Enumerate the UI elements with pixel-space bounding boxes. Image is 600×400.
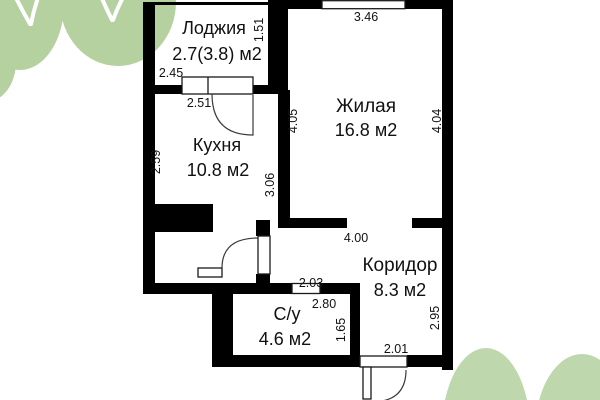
dim-loggia-depth: 1.51 <box>252 18 266 42</box>
dim-kitchen-right: 3.06 <box>263 173 277 197</box>
living-area: 16.8 м2 <box>335 120 397 140</box>
entrance-threshold <box>360 356 407 367</box>
leaf-decoration-bottom-right <box>442 348 600 400</box>
kitchen-name: Кухня <box>193 135 241 155</box>
wall-bottom-right <box>407 355 453 367</box>
leaf-lobe <box>442 348 530 400</box>
entrance-door-leaf <box>363 367 371 399</box>
wall-bathroom-top <box>143 283 292 294</box>
entrance-door-arc <box>371 370 406 400</box>
dim-entrance-width: 2.01 <box>384 342 408 356</box>
floorplan-drawing: Лоджия 2.7(3.8) м2 Жилая 16.8 м2 Кухня 1… <box>0 0 600 400</box>
wall-corridor-top-right <box>412 218 453 228</box>
floorplan-page: Лоджия 2.7(3.8) м2 Жилая 16.8 м2 Кухня 1… <box>0 0 600 400</box>
corridor-name: Коридор <box>362 255 437 276</box>
living-room-window <box>322 1 405 9</box>
wall-bathroom-bottom <box>212 355 360 367</box>
wall-kitchen-stub <box>143 204 213 232</box>
bathroom-name: С/у <box>274 304 301 324</box>
dim-kitchen-top: 2.51 <box>187 96 211 110</box>
wall-top-left-of-window <box>288 0 322 9</box>
loggia-area: 2.7(3.8) м2 <box>172 44 261 64</box>
corridor-area: 8.3 м2 <box>374 280 426 300</box>
leaf-lobe <box>535 354 600 400</box>
dim-loggia-width: 2.45 <box>159 66 183 80</box>
bathroom-area: 4.6 м2 <box>259 329 311 349</box>
kitchen-door-leaf <box>198 268 222 277</box>
balcony-door-arc <box>212 94 253 135</box>
wall-door-jamb-top <box>256 220 270 236</box>
wall-corridor-top-left <box>278 218 347 228</box>
kitchen-area: 10.8 м2 <box>187 160 249 180</box>
dim-living-left: 4.05 <box>286 109 300 133</box>
dim-bathroom-door: 2.03 <box>299 276 323 290</box>
dim-bathroom-top: 2.80 <box>312 297 336 311</box>
dim-living-right: 4.04 <box>430 109 444 133</box>
dim-bathroom-right: 1.65 <box>334 318 348 342</box>
loggia-name: Лоджия <box>182 18 246 38</box>
dim-corridor-top: 4.00 <box>344 231 368 245</box>
dim-living-top: 3.46 <box>354 10 378 24</box>
kitchen-door-opening <box>258 236 270 274</box>
wall-loggia-living-divider <box>268 0 288 94</box>
balcony-window-door-block <box>182 77 253 94</box>
kitchen-door-arc <box>222 238 258 268</box>
wall-right-outer <box>442 0 453 370</box>
wall-loggia-top-thin <box>143 2 268 5</box>
dim-kitchen-left: 2.59 <box>149 150 163 174</box>
dim-corridor-right: 2.95 <box>428 306 442 330</box>
living-name: Жилая <box>336 96 396 117</box>
wall-bathroom-right <box>350 283 360 367</box>
wall-left-outer <box>143 3 155 293</box>
